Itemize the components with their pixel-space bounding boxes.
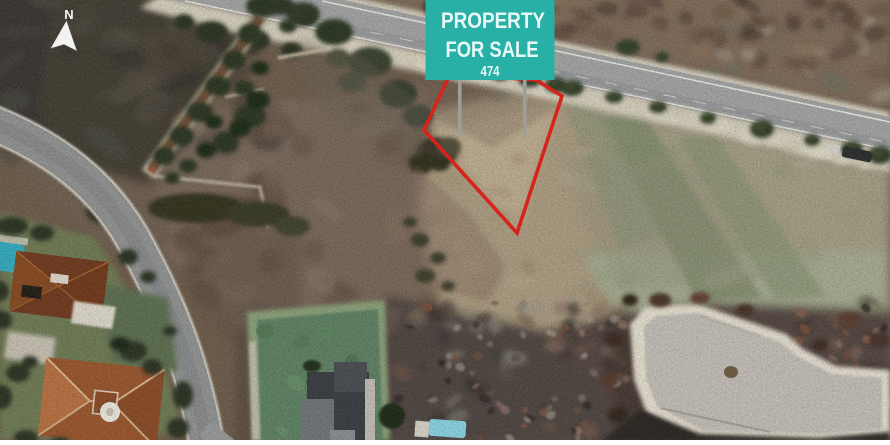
svg-text:474: 474	[481, 64, 500, 80]
svg-text:FOR SALE: FOR SALE	[446, 37, 539, 62]
svg-text:PROPERTY: PROPERTY	[441, 8, 545, 33]
svg-text:N: N	[64, 7, 73, 22]
